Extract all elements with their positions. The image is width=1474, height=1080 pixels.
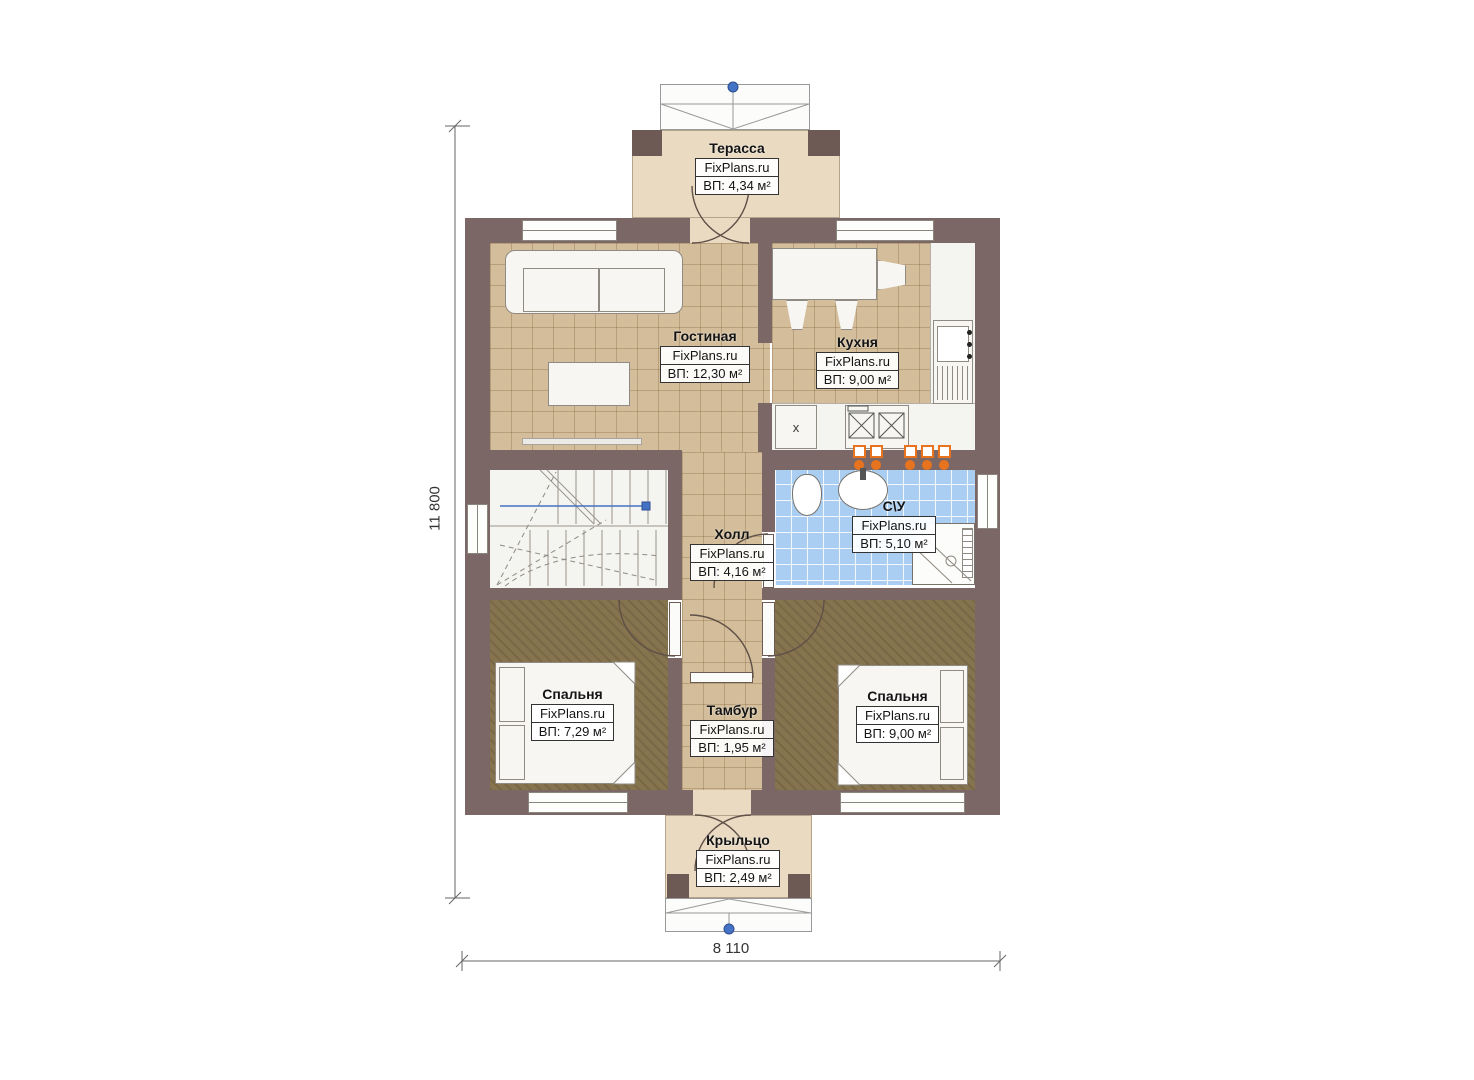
room-name-bathroom: С\У [840,498,948,514]
room-area-porch: ВП: 2,49 м² [697,869,778,886]
window-bathroom-right [977,474,998,529]
room-area-living: ВП: 12,30 м² [661,365,750,382]
room-label-bathroom: С\У FixPlans.ru ВП: 5,10 м² [840,498,948,553]
stove [845,405,909,449]
room-label-bedroom-left: Спальня FixPlans.ru ВП: 7,29 м² [515,686,630,741]
room-info-bedroom-left: FixPlans.ru ВП: 7,29 м² [531,704,614,741]
wall-bathroom-bedroom-right [775,588,975,600]
room-info-porch: FixPlans.ru ВП: 2,49 м² [696,850,779,887]
room-label-bedroom-right: Спальня FixPlans.ru ВП: 9,00 м² [840,688,955,743]
brand-watermark: FixPlans.ru [661,347,750,365]
brand-watermark: FixPlans.ru [853,517,934,535]
radiator-3 [904,445,917,470]
room-name-bedroom-right: Спальня [840,688,955,704]
dimension-width-label: 8 110 [701,940,761,957]
wall-living-kitchen-lower [758,403,772,452]
room-info-vestibule: FixPlans.ru ВП: 1,95 м² [690,720,773,757]
wall-hall-bathroom-upper [762,452,775,532]
room-name-living: Гостиная [630,328,780,344]
kitchen-table [772,248,877,300]
terrace-steps [660,84,810,130]
window-bedroom-right-bottom [840,792,965,813]
room-area-bathroom: ВП: 5,10 м² [853,535,934,552]
room-label-terrace: Терасса FixPlans.ru ВП: 4,34 м² [668,140,806,195]
room-label-hall: Холл FixPlans.ru ВП: 4,16 м² [678,526,786,581]
room-area-bedroom-right: ВП: 9,00 м² [857,725,938,742]
room-label-kitchen: Кухня FixPlans.ru ВП: 9,00 м² [800,334,915,389]
window-kitchen-top [836,220,934,241]
brand-watermark: FixPlans.ru [857,707,938,725]
room-name-bedroom-left: Спальня [515,686,630,702]
room-area-kitchen: ВП: 9,00 м² [817,371,898,388]
wall-hall-bathroom-stub [762,588,775,600]
brand-watermark: FixPlans.ru [532,705,613,723]
brand-watermark: FixPlans.ru [697,851,778,869]
radiator-2 [870,445,883,470]
brand-watermark: FixPlans.ru [817,353,898,371]
towel-rail [962,528,973,578]
dimension-height-label: 11 800 [427,479,444,539]
room-area-vestibule: ВП: 1,95 м² [691,739,772,756]
brand-watermark: FixPlans.ru [696,159,777,177]
room-info-living: FixPlans.ru ВП: 12,30 м² [660,346,751,383]
room-area-hall: ВП: 4,16 м² [691,563,772,580]
wall-living-stairs [490,450,682,470]
room-info-hall: FixPlans.ru ВП: 4,16 м² [690,544,773,581]
radiator-1 [853,445,866,470]
window-living-top [522,220,617,241]
room-name-porch: Крыльцо [668,832,808,848]
sofa-cushion-right [599,268,665,312]
room-name-vestibule: Тамбур [678,702,786,718]
room-area-bedroom-left: ВП: 7,29 м² [532,723,613,740]
toilet [792,474,822,516]
faucet-dot-3 [967,354,972,359]
sink-basin [937,326,969,362]
window-bedroom-left-bottom [528,792,628,813]
terrace-pier-right [808,130,840,156]
room-info-bathroom: FixPlans.ru ВП: 5,10 м² [852,516,935,553]
floor-plan-canvas: x [0,0,1474,1080]
door-leaf-bedroom-left [669,602,681,656]
door-opening-porch [693,790,751,815]
room-info-kitchen: FixPlans.ru ВП: 9,00 м² [816,352,899,389]
door-leaf-vestibule [690,672,753,683]
sink-faucet [860,468,866,480]
kitchen-cabinet-x: x [775,405,817,449]
door-opening-terrace [690,218,750,243]
sofa-cushion-left [523,268,599,312]
wall-stairs-bedroom-left [490,588,668,600]
faucet-dot-1 [967,330,972,335]
cabinet-mark: x [793,420,800,435]
radiator-5 [938,445,951,470]
porch-steps [665,898,812,932]
tv-stand [522,438,642,445]
room-label-vestibule: Тамбур FixPlans.ru ВП: 1,95 м² [678,702,786,757]
room-area-terrace: ВП: 4,34 м² [696,177,777,194]
window-staircase-left [467,504,488,554]
brand-watermark: FixPlans.ru [691,721,772,739]
room-name-hall: Холл [678,526,786,542]
coffee-table [548,362,630,406]
door-leaf-bedroom-right [762,602,775,656]
staircase-floor [490,470,668,588]
room-name-terrace: Терасса [668,140,806,156]
room-info-terrace: FixPlans.ru ВП: 4,34 м² [695,158,778,195]
radiator-4 [921,445,934,470]
room-label-porch: Крыльцо FixPlans.ru ВП: 2,49 м² [668,832,808,887]
brand-watermark: FixPlans.ru [691,545,772,563]
room-name-kitchen: Кухня [800,334,915,350]
room-label-living: Гостиная FixPlans.ru ВП: 12,30 м² [630,328,780,383]
faucet-dot-2 [967,342,972,347]
room-info-bedroom-right: FixPlans.ru ВП: 9,00 м² [856,706,939,743]
terrace-pier-left [632,130,662,156]
sink-drainer [937,366,969,400]
